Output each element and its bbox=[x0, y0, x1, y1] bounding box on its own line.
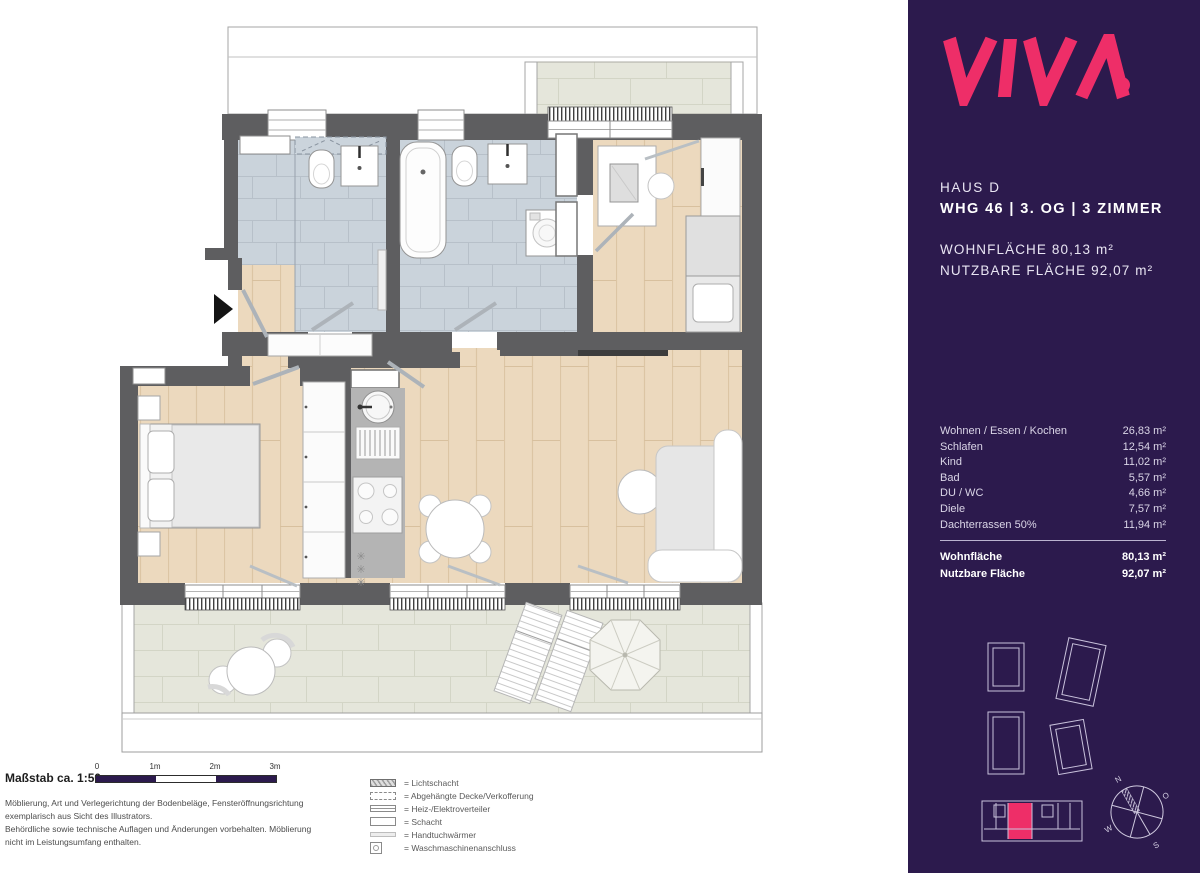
svg-text:O: O bbox=[1161, 790, 1171, 801]
total-row: Nutzbare Fläche 92,07 m² bbox=[940, 566, 1166, 583]
shaft-box bbox=[556, 134, 577, 196]
shaft-box bbox=[556, 202, 577, 256]
legend-row: = Schacht bbox=[370, 815, 534, 828]
building-strip bbox=[982, 801, 1082, 841]
sidebar: HAUS D WHG 46 | 3. OG | 3 ZIMMER WOHNFLÄ… bbox=[908, 0, 1200, 873]
heiz-elektro-icon bbox=[370, 805, 396, 812]
sofa bbox=[648, 430, 742, 582]
waschmaschine-icon bbox=[370, 842, 382, 854]
floorplan-page: { "sidebar": { "logo": "VIVA", "haus": "… bbox=[0, 0, 1200, 873]
abgehaengte-decke-icon bbox=[370, 792, 396, 800]
scale-strip bbox=[95, 775, 277, 783]
entrance-arrow-icon bbox=[214, 294, 233, 324]
nightstand bbox=[138, 532, 160, 556]
table-divider bbox=[940, 540, 1166, 541]
scale-tick: 1m bbox=[149, 762, 160, 771]
site-building bbox=[1056, 638, 1106, 707]
single-bed bbox=[686, 216, 740, 332]
legend-row: = Waschmaschinenanschluss bbox=[370, 841, 534, 854]
site-building bbox=[988, 643, 1024, 691]
shaft-box-bedroom bbox=[133, 368, 165, 384]
lichtschacht-box bbox=[240, 136, 290, 154]
legend-row: = Lichtschacht bbox=[370, 776, 534, 789]
legend-row: = Heiz-/Elektroverteiler bbox=[370, 802, 534, 815]
disclaimer-text: Möblierung, Art und Verlegerichtung der … bbox=[5, 797, 355, 849]
svg-text:N: N bbox=[1113, 774, 1123, 785]
schacht-icon bbox=[370, 817, 396, 826]
wardrobe bbox=[701, 138, 740, 220]
legend-label: = Abgehängte Decke/Verkofferung bbox=[404, 791, 534, 801]
legend-row: = Abgehängte Decke/Verkofferung bbox=[370, 789, 534, 802]
viva-logo bbox=[938, 34, 1148, 106]
sink bbox=[341, 146, 378, 186]
room-area-row: Wohnen / Essen / Kochen 26,83 m² bbox=[940, 424, 1166, 440]
bathtub bbox=[400, 142, 446, 258]
scale-label: Maßstab ca. 1:50 bbox=[5, 771, 101, 785]
desk-chair bbox=[648, 173, 674, 199]
tv bbox=[578, 350, 668, 356]
site-plan: N O S W bbox=[908, 630, 1200, 873]
legend-label: = Schacht bbox=[404, 817, 442, 827]
room-area-row: Kind 11,02 m² bbox=[940, 455, 1166, 471]
nightstand bbox=[138, 396, 160, 420]
room-area-row: Schlafen 12,54 m² bbox=[940, 440, 1166, 456]
highlighted-unit bbox=[1008, 803, 1032, 839]
room-area-row: Dachterrassen 50% 11,94 m² bbox=[940, 518, 1166, 534]
legend-label: = Lichtschacht bbox=[404, 778, 459, 788]
towel-warmer bbox=[378, 250, 386, 310]
handtuchwaermer-icon bbox=[370, 832, 396, 837]
parasol bbox=[590, 620, 660, 690]
compass-icon: N O S W bbox=[1084, 758, 1190, 868]
room-area-row: Bad 5,57 m² bbox=[940, 471, 1166, 487]
svg-text:✳: ✳ bbox=[356, 564, 365, 576]
floorplan-drawing: ✳ ✳ ✳ bbox=[0, 0, 908, 760]
svg-text:✳: ✳ bbox=[356, 577, 365, 589]
scale-tick: 3m bbox=[269, 762, 280, 771]
wohnflaeche-label: WOHNFLÄCHE 80,13 m² bbox=[940, 242, 1114, 257]
kitchen: ✳ ✳ ✳ bbox=[303, 370, 405, 589]
nutzflaeche-label: NUTZBARE FLÄCHE 92,07 m² bbox=[940, 263, 1153, 278]
site-building bbox=[988, 712, 1024, 774]
lichtschacht-icon bbox=[370, 779, 396, 787]
legend-row: = Handtuchwärmer bbox=[370, 828, 534, 841]
bedroom-wardrobe bbox=[303, 382, 345, 578]
scale-tick: 0 bbox=[95, 762, 99, 771]
legend-label: = Waschmaschinenanschluss bbox=[404, 843, 516, 853]
plan-legend: = Lichtschacht = Abgehängte Decke/Verkof… bbox=[370, 776, 534, 854]
shaft-box bbox=[351, 370, 399, 388]
total-row: Wohnfläche 80,13 m² bbox=[940, 549, 1166, 566]
coffee-table bbox=[618, 470, 662, 514]
room-area-row: Diele 7,57 m² bbox=[940, 502, 1166, 518]
dish-rack bbox=[356, 427, 400, 459]
svg-text:S: S bbox=[1152, 840, 1161, 850]
legend-label: = Handtuchwärmer bbox=[404, 830, 476, 840]
dining-set bbox=[419, 495, 491, 563]
toilet bbox=[309, 150, 334, 188]
scale-bar: 01m2m3m bbox=[95, 762, 277, 783]
legend-label: = Heiz-/Elektroverteiler bbox=[404, 804, 490, 814]
svg-text:✳: ✳ bbox=[356, 551, 365, 563]
double-bed bbox=[140, 424, 260, 528]
stove bbox=[353, 477, 402, 533]
toilet bbox=[452, 146, 477, 186]
site-building bbox=[1050, 719, 1092, 774]
haus-label: HAUS D bbox=[940, 180, 1001, 195]
sink bbox=[488, 144, 527, 184]
totals-table: Wohnfläche 80,13 m² Nutzbare Fläche 92,0… bbox=[940, 549, 1166, 582]
room-area-row: DU / WC 4,66 m² bbox=[940, 486, 1166, 502]
svg-text:W: W bbox=[1103, 823, 1114, 835]
scale-tick: 2m bbox=[209, 762, 220, 771]
hall-sideboard bbox=[268, 334, 372, 356]
room-area-table: Wohnen / Essen / Kochen 26,83 m² Schlafe… bbox=[940, 424, 1166, 533]
roof-area-top bbox=[228, 27, 757, 114]
unit-label: WHG 46 | 3. OG | 3 ZIMMER bbox=[940, 201, 1163, 217]
